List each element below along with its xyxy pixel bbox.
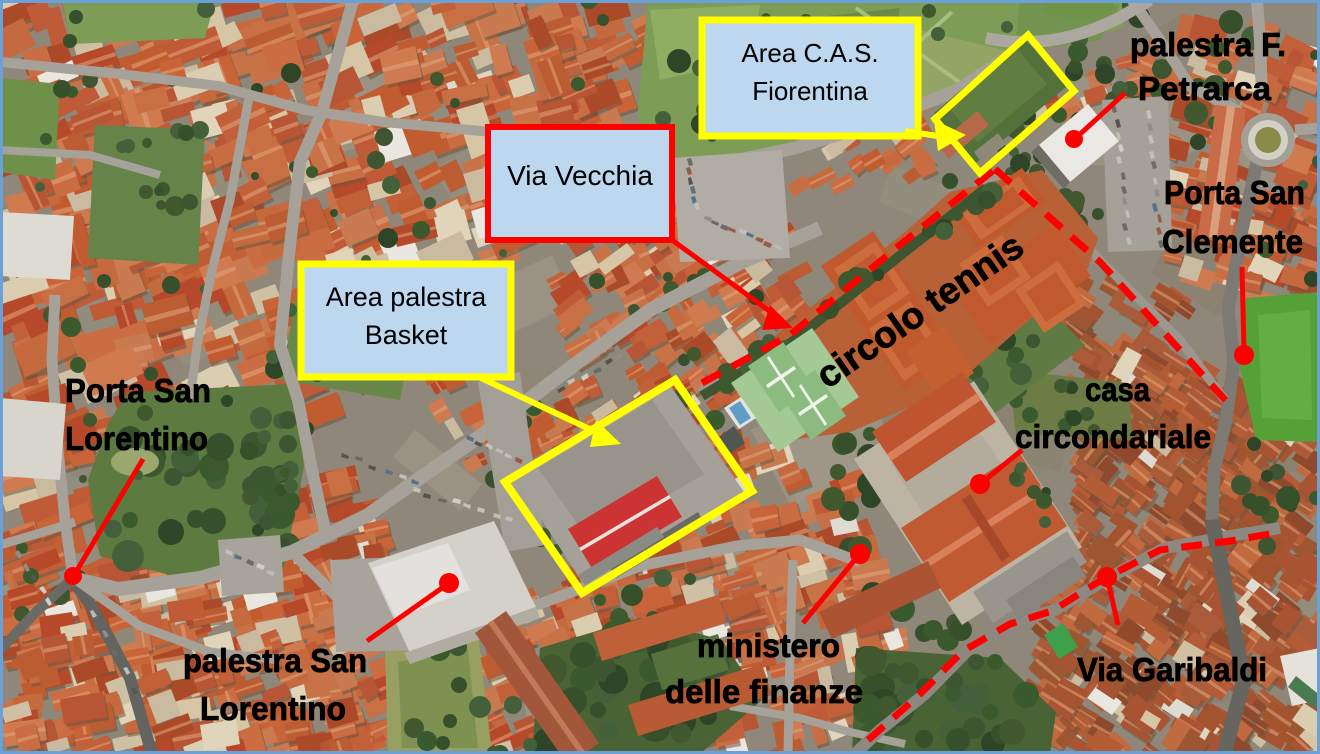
svg-text:Lorentino: Lorentino: [200, 690, 346, 727]
svg-text:Via Vecchia: Via Vecchia: [507, 160, 653, 191]
svg-text:Via Garibaldi: Via Garibaldi: [1077, 651, 1267, 688]
svg-text:Clemente: Clemente: [1162, 223, 1303, 260]
svg-text:Area palestra: Area palestra: [326, 282, 488, 312]
svg-text:Lorentino: Lorentino: [65, 420, 208, 457]
svg-text:Basket: Basket: [365, 320, 448, 350]
svg-text:palestra San: palestra San: [183, 642, 367, 679]
svg-text:Petrarca: Petrarca: [1138, 70, 1272, 107]
svg-text:palestra F.: palestra F.: [1130, 26, 1286, 63]
svg-text:Porta San: Porta San: [65, 372, 211, 409]
svg-text:Fiorentina: Fiorentina: [752, 76, 868, 106]
svg-text:ministero: ministero: [697, 627, 840, 664]
svg-text:circondariale: circondariale: [1015, 418, 1211, 455]
svg-text:Area C.A.S.: Area C.A.S.: [741, 38, 878, 68]
svg-text:delle finanze: delle finanze: [665, 673, 863, 710]
svg-text:Porta San: Porta San: [1164, 174, 1305, 211]
svg-text:casa: casa: [1085, 371, 1151, 408]
